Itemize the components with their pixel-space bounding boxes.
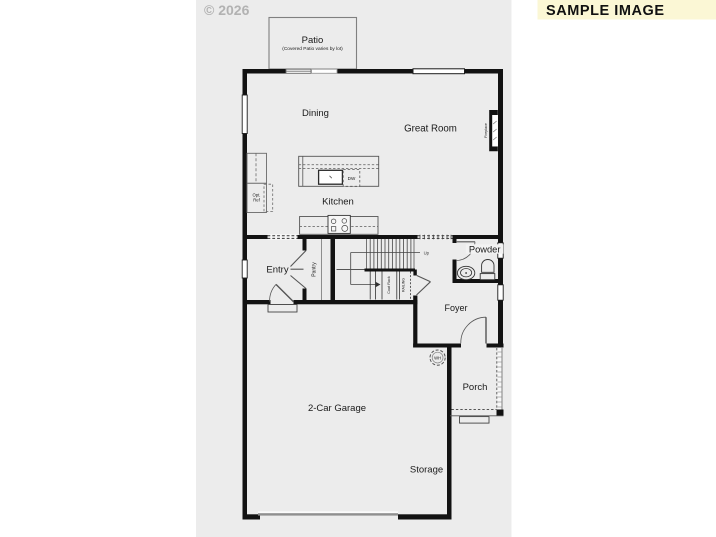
svg-text:RAILING: RAILING [402,278,406,292]
svg-text:Fireplace: Fireplace [484,123,488,138]
svg-text:Pantry: Pantry [312,262,318,277]
svg-text:Powder: Powder [469,245,501,255]
svg-text:WH: WH [434,356,441,361]
svg-text:© 2026: © 2026 [204,2,250,18]
svg-text:DW: DW [348,176,356,181]
svg-text:Foyer: Foyer [444,303,467,313]
svg-text:Porch: Porch [463,382,488,393]
svg-text:Patio: Patio [302,35,324,46]
svg-text:Ref: Ref [253,198,260,203]
svg-text:2-Car Garage: 2-Car Garage [308,403,366,414]
svg-text:Up: Up [424,250,430,255]
svg-text:Kitchen: Kitchen [322,197,354,208]
svg-text:SAMPLE IMAGE: SAMPLE IMAGE [546,3,665,19]
svg-text:Coat Rack: Coat Rack [387,276,391,294]
svg-text:Great Room: Great Room [404,124,457,135]
svg-text:Dining: Dining [302,108,329,119]
svg-text:Storage: Storage [410,465,443,476]
svg-text:(Covered Patio varies by lot): (Covered Patio varies by lot) [282,46,343,52]
svg-text:Entry: Entry [266,264,288,275]
